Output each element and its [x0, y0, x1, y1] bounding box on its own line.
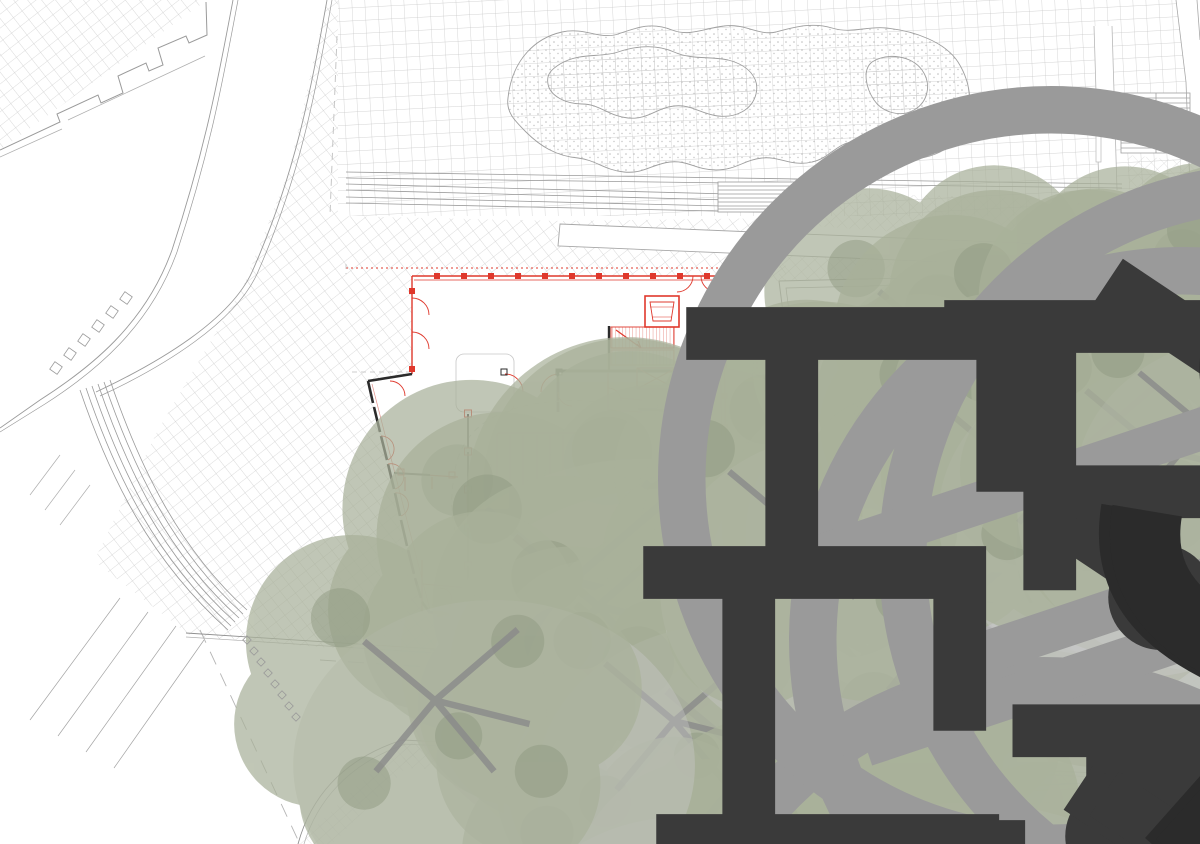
planters-layer: [50, 292, 133, 375]
planter: [92, 320, 105, 333]
paving-nw-corner: [0, 0, 207, 150]
site-plan-canvas: [0, 0, 1200, 844]
planter: [120, 292, 133, 305]
planter: [78, 334, 91, 347]
planter: [106, 306, 119, 319]
planter: [50, 362, 63, 375]
planter: [64, 348, 77, 361]
site-plan-page: [0, 0, 1200, 844]
